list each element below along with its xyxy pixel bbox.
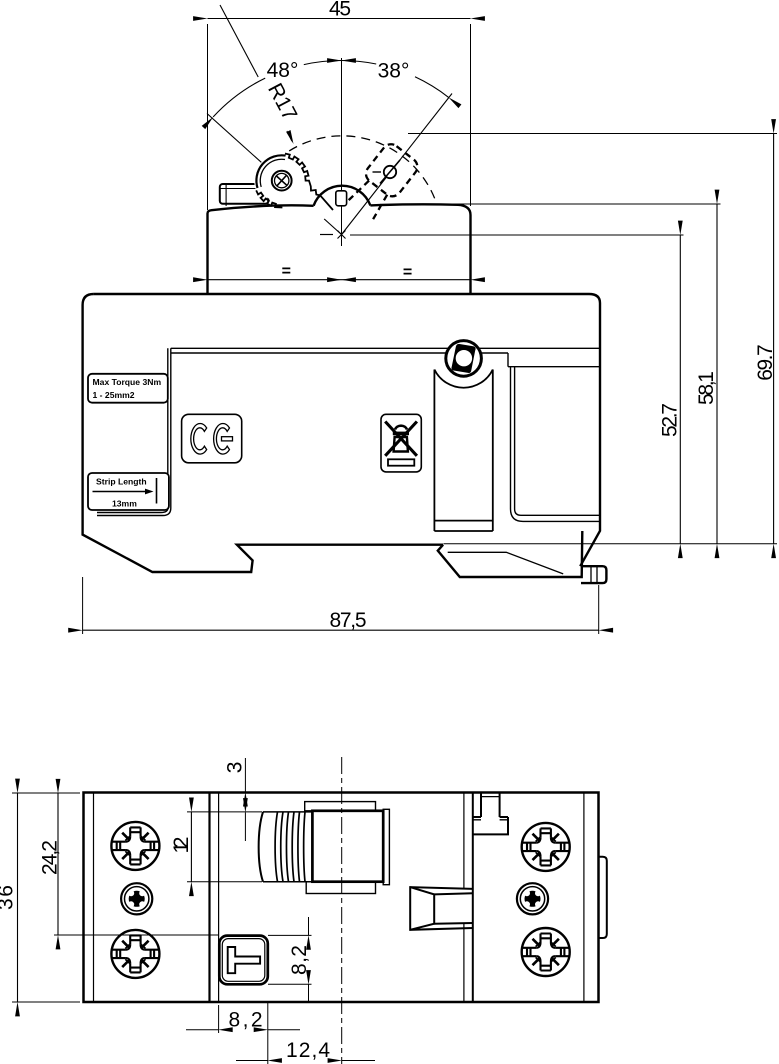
svg-text:R17: R17 <box>263 80 301 125</box>
svg-text:58,1: 58,1 <box>695 371 718 405</box>
svg-text:69.7: 69.7 <box>754 344 777 381</box>
svg-text:1 - 25mm2: 1 - 25mm2 <box>93 390 135 400</box>
svg-text:8,2: 8,2 <box>229 1009 263 1032</box>
svg-text:=: = <box>403 264 412 281</box>
svg-text:12: 12 <box>170 837 193 854</box>
svg-text:8,2: 8,2 <box>288 945 311 975</box>
svg-text:87,5: 87,5 <box>330 609 367 632</box>
svg-text:38°: 38° <box>378 60 410 83</box>
svg-text:=: = <box>282 263 291 280</box>
svg-text:45: 45 <box>329 0 351 21</box>
svg-text:36: 36 <box>0 885 18 910</box>
svg-text:48°: 48° <box>267 59 299 82</box>
svg-text:52.7: 52.7 <box>659 403 682 437</box>
svg-text:24,2: 24,2 <box>39 840 62 875</box>
svg-text:Max Torque 3Nm: Max Torque 3Nm <box>93 377 162 387</box>
svg-text:Strip Length: Strip Length <box>96 477 147 487</box>
svg-text:3: 3 <box>224 762 247 774</box>
svg-text:13mm: 13mm <box>112 499 137 509</box>
svg-text:12,4: 12,4 <box>286 1039 330 1062</box>
